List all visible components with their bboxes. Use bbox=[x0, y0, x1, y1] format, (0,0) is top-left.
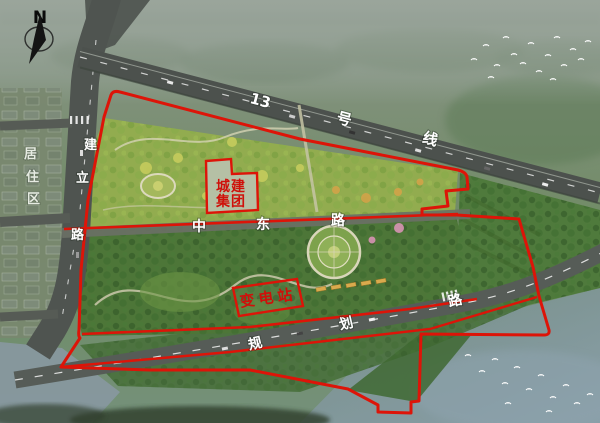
side-street bbox=[0, 218, 70, 222]
zhongdong-road-label-2: 东 bbox=[256, 216, 270, 233]
zhongdong-road-label-1: 中 bbox=[192, 218, 206, 235]
jianli-road-label-1: 建 bbox=[84, 137, 97, 153]
residential-label-3: 区 bbox=[27, 192, 40, 207]
side-street bbox=[0, 123, 72, 126]
side-street bbox=[0, 314, 58, 317]
chengjian-group-label-line2: 集团 bbox=[215, 193, 246, 210]
chengjian-group-label-line1: 城建 bbox=[216, 178, 246, 195]
jianli-road-label-2: 立 bbox=[76, 170, 89, 186]
zhongdong-road-label-3: 路 bbox=[331, 212, 346, 229]
map-canvas: 城建 集团 变电站 13 号 线 建 立 路 中 东 路 规 划 路 居 住 区… bbox=[0, 0, 600, 423]
jianli-road-label-3: 路 bbox=[71, 227, 85, 243]
residential-label-1: 居 bbox=[24, 147, 37, 162]
site-plan-aerial-rendering: 城建 集团 变电站 13 号 线 建 立 路 中 东 路 规 划 路 居 住 区… bbox=[0, 0, 600, 423]
central-lake-plaza bbox=[308, 226, 360, 278]
residential-label-2: 住 bbox=[26, 169, 39, 185]
